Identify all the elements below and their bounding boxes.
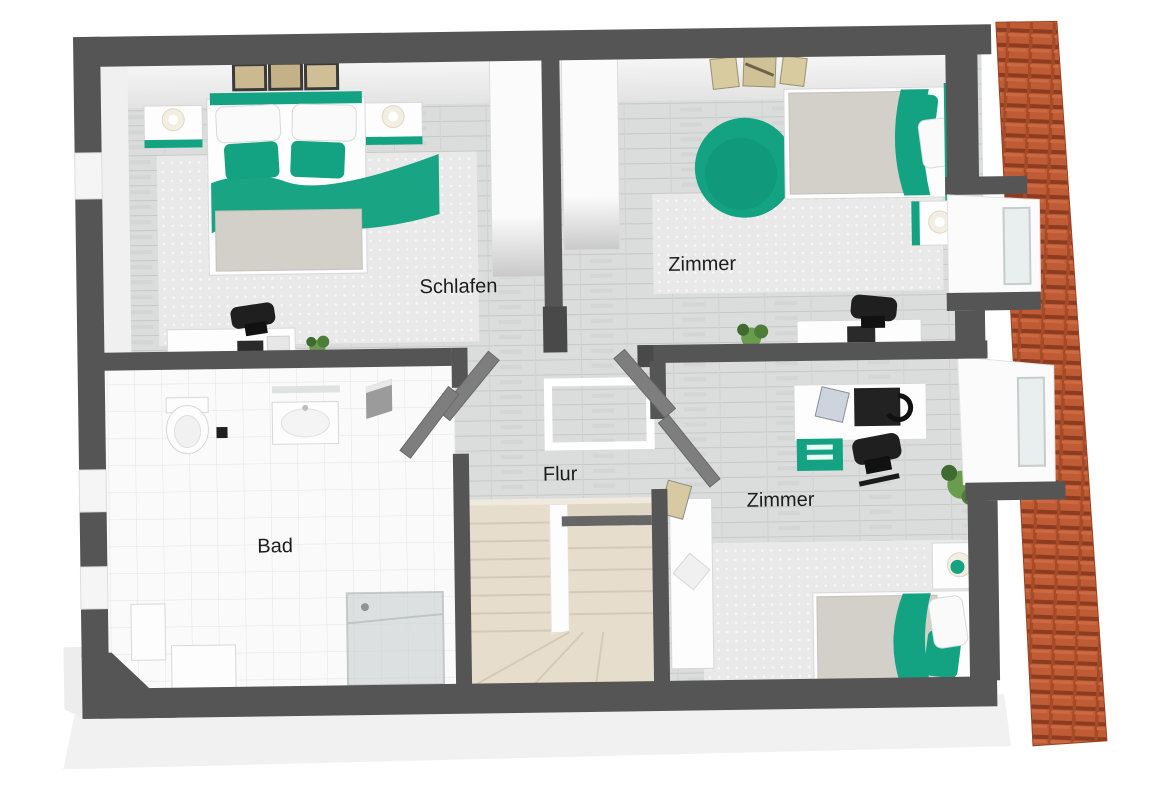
wall-posters bbox=[710, 53, 808, 89]
floorplan-3d-rendering: Schlafen bbox=[0, 0, 1170, 785]
wardrobe bbox=[489, 59, 546, 278]
bath-cabinet bbox=[172, 645, 237, 690]
teal-cushion bbox=[290, 141, 345, 179]
wall-east-lower bbox=[968, 500, 1001, 680]
floorplan-stage: Schlafen bbox=[0, 0, 1170, 785]
single-bed bbox=[784, 83, 959, 203]
window-west-1 bbox=[75, 153, 103, 199]
wardrobe bbox=[561, 58, 620, 251]
room-label-zimmer-top: Zimmer bbox=[668, 253, 736, 276]
sink-vanity bbox=[272, 401, 339, 444]
wall-pictures bbox=[233, 62, 337, 89]
washer bbox=[131, 604, 166, 660]
wall-flur-zimmer-lower bbox=[651, 489, 670, 683]
teal-cushion bbox=[224, 141, 280, 180]
window bbox=[1003, 208, 1030, 284]
headboard bbox=[210, 91, 362, 105]
single-bed bbox=[813, 586, 994, 687]
shower-cabin bbox=[347, 592, 444, 685]
wall-east-upper bbox=[945, 52, 979, 180]
room-label-schlafen: Schlafen bbox=[419, 275, 497, 298]
toilet bbox=[166, 397, 209, 454]
mirror bbox=[272, 385, 340, 393]
notebook bbox=[815, 387, 849, 423]
wall-bad-flur-lower bbox=[453, 454, 472, 686]
nightstand-left bbox=[144, 105, 203, 148]
dormer-window-bottom bbox=[958, 355, 1066, 500]
toilet-brush bbox=[216, 427, 227, 438]
room-label-flur: Flur bbox=[543, 463, 578, 485]
floor-slab-edge-left bbox=[64, 647, 85, 719]
room-label-zimmer-bottom: Zimmer bbox=[746, 489, 814, 512]
window-west-2 bbox=[79, 470, 107, 512]
floorplan-group: Schlafen bbox=[53, 21, 1107, 770]
wall-divider-schlafen-zimmer bbox=[541, 58, 562, 308]
staircase bbox=[459, 497, 658, 688]
area-rug bbox=[652, 190, 943, 294]
wall-face-west bbox=[99, 64, 131, 354]
duvet bbox=[215, 209, 362, 271]
stair-guard bbox=[562, 515, 652, 526]
window bbox=[1018, 378, 1045, 466]
nightstand-right bbox=[364, 102, 423, 145]
room-label-bad: Bad bbox=[257, 535, 293, 557]
window-west-3 bbox=[80, 567, 108, 609]
door-post-center bbox=[543, 306, 568, 352]
